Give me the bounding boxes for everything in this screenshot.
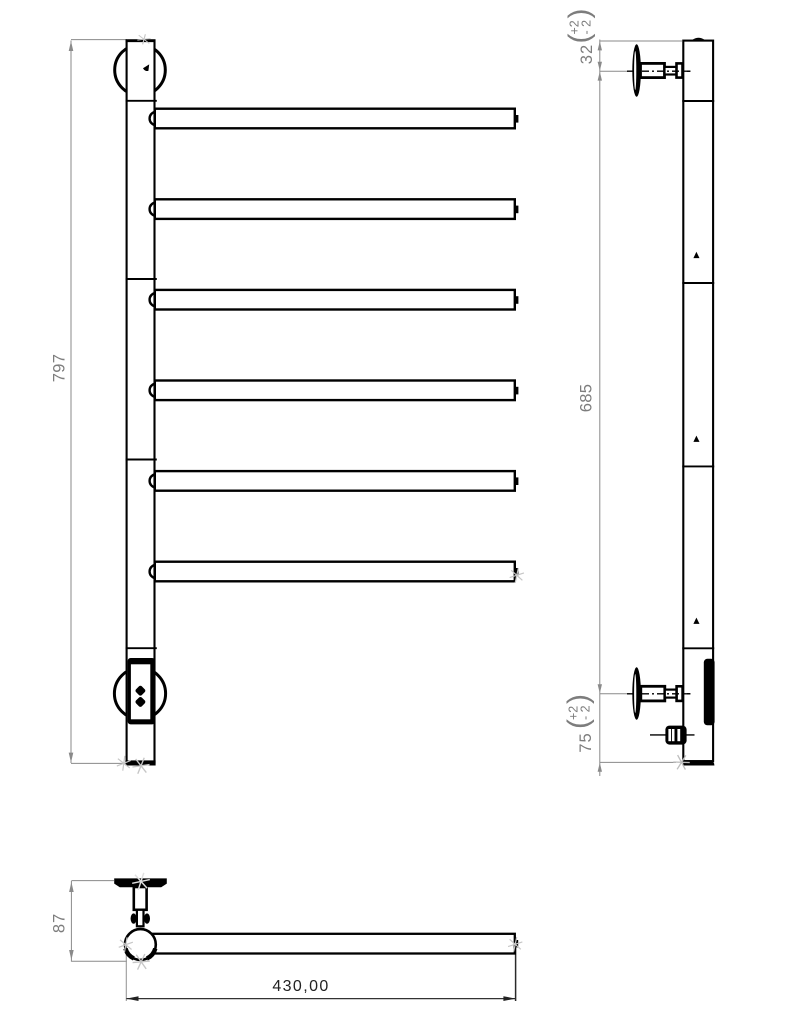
svg-text:): )	[562, 694, 595, 704]
svg-text:- 2: - 2	[579, 705, 593, 720]
svg-text:685: 685	[577, 384, 595, 412]
svg-text:430,00: 430,00	[272, 978, 329, 995]
svg-text:75: 75	[577, 732, 595, 752]
svg-text:797: 797	[50, 354, 68, 382]
svg-text:87: 87	[51, 913, 69, 933]
svg-text:32: 32	[578, 44, 596, 64]
svg-text:- 2: - 2	[580, 20, 594, 35]
svg-text:): )	[563, 9, 596, 19]
